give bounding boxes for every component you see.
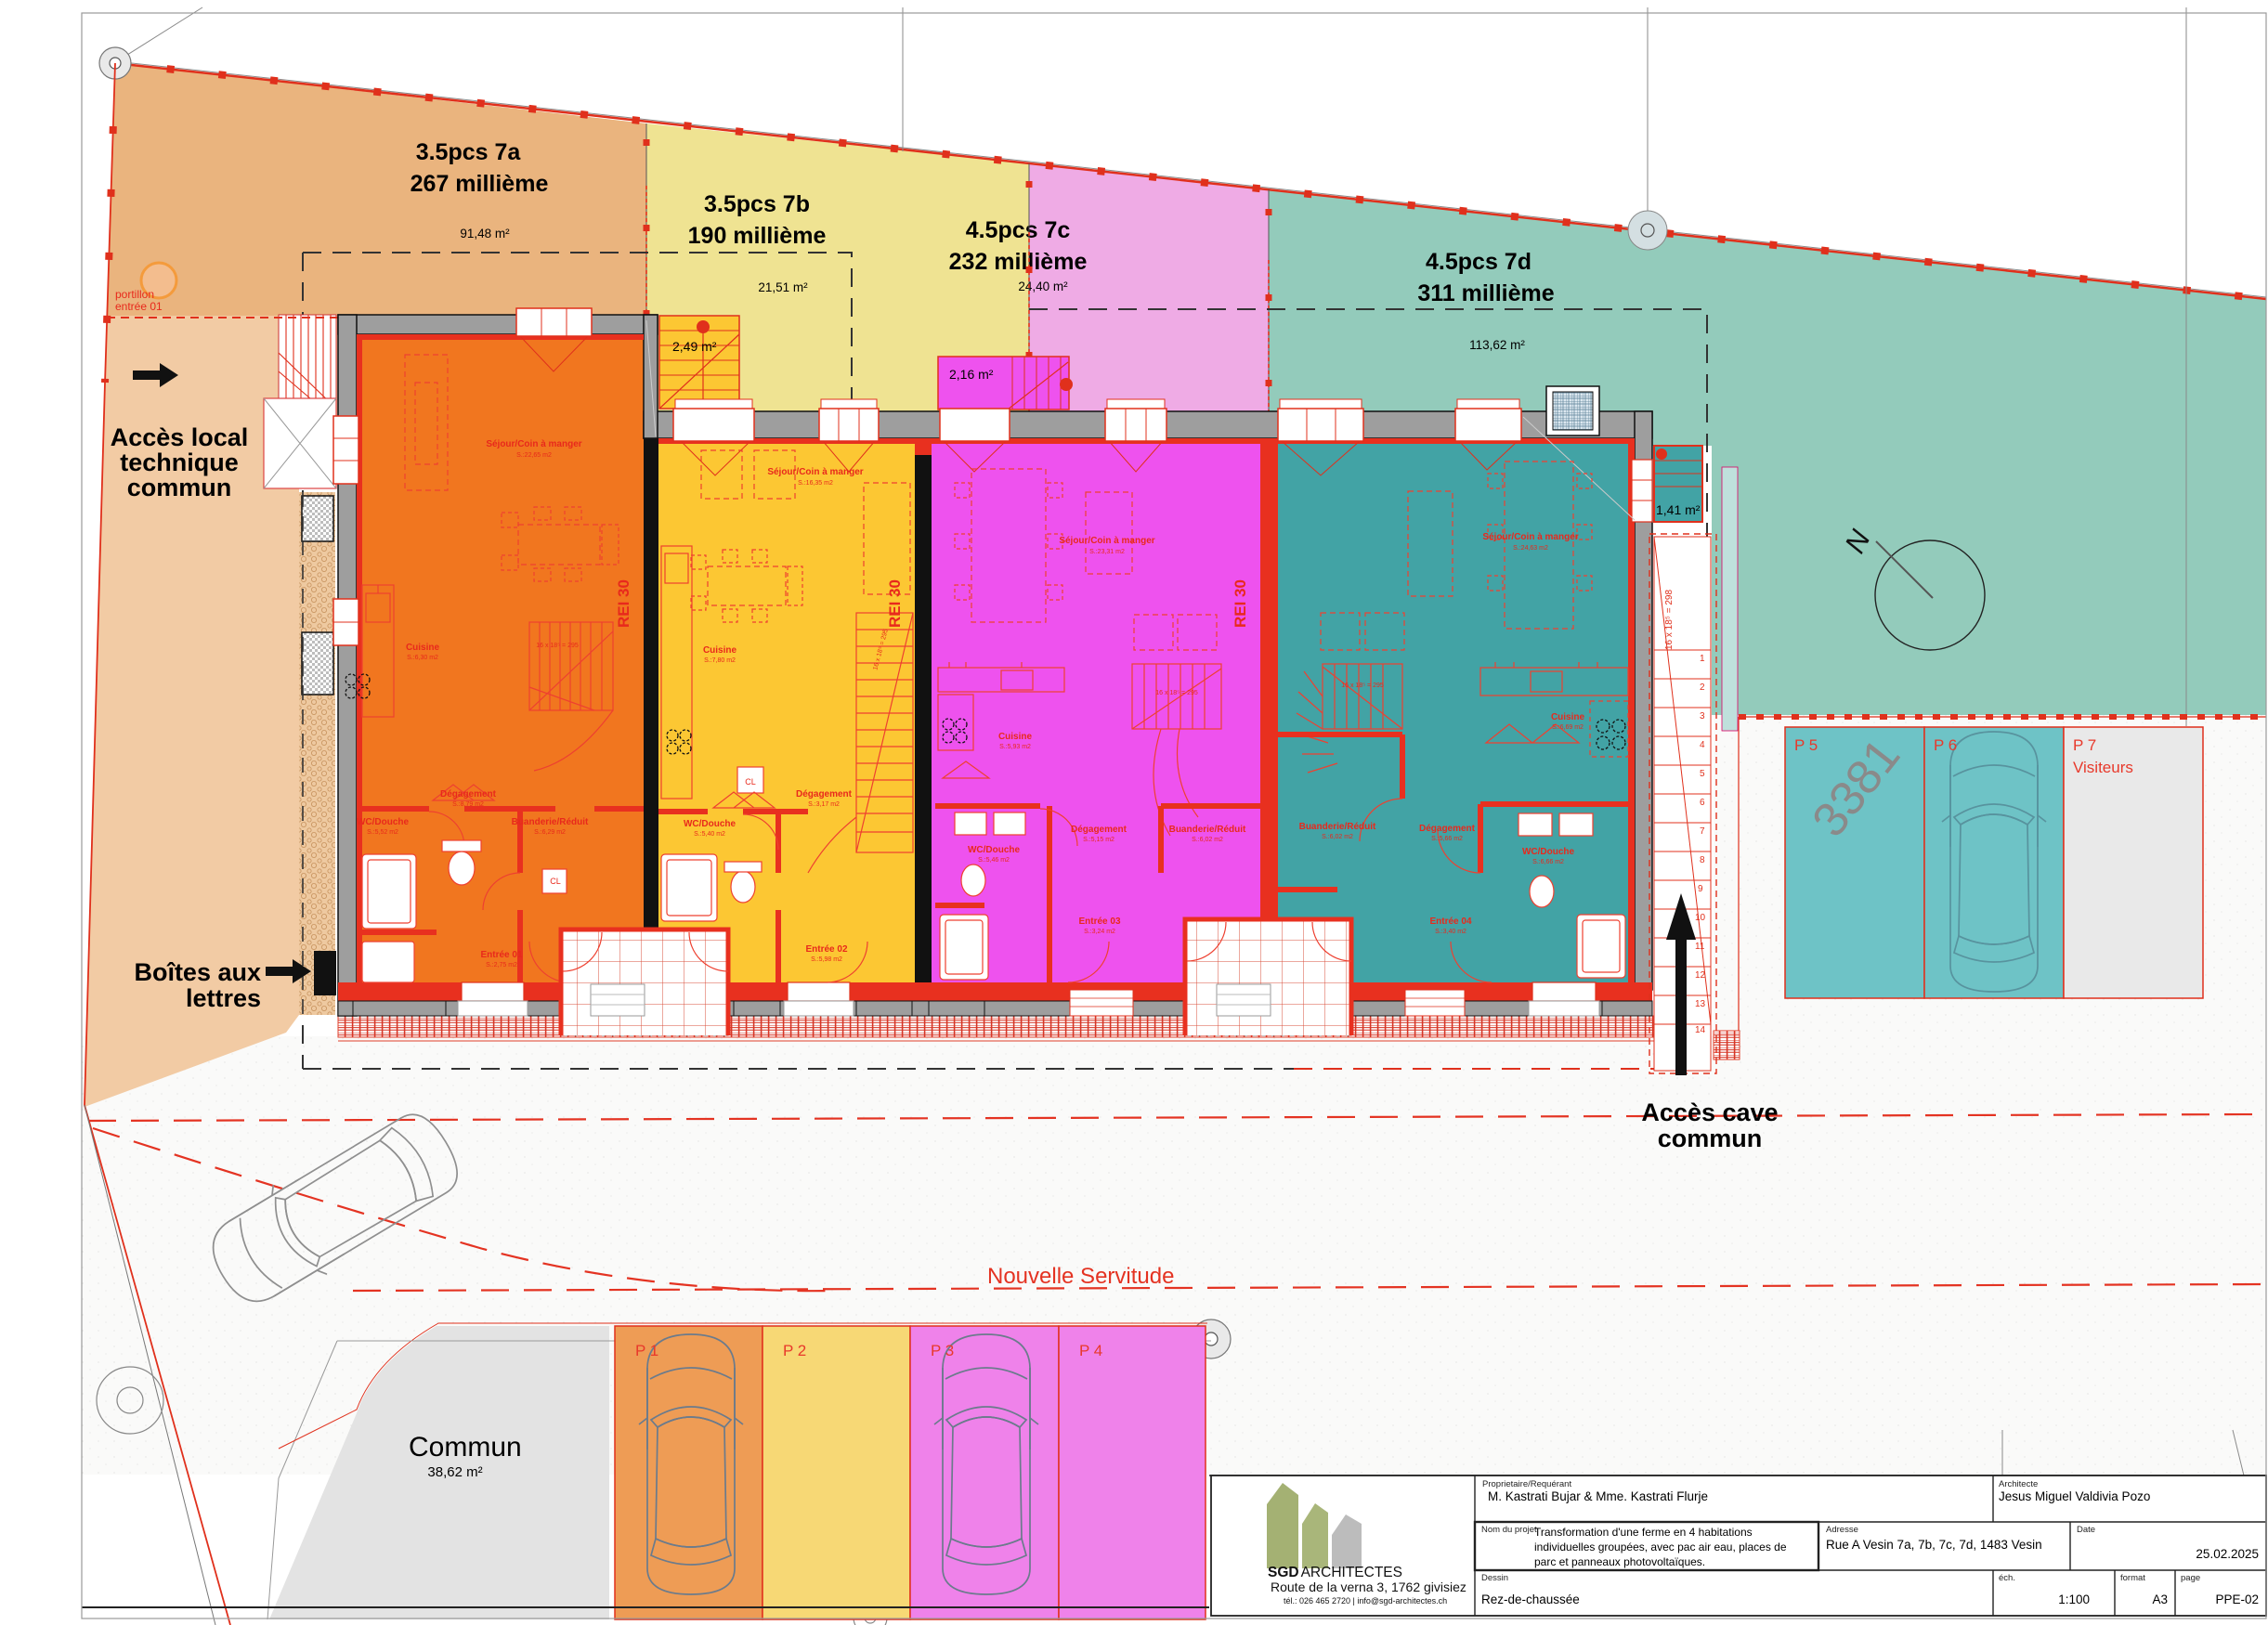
- svg-text:16 x 18⁵ = 298: 16 x 18⁵ = 298: [1664, 590, 1675, 650]
- svg-text:S.:5,15 m2: S.:5,15 m2: [1083, 837, 1114, 843]
- svg-text:Cuisine: Cuisine: [998, 732, 1033, 742]
- svg-text:Nouvelle Servitude: Nouvelle Servitude: [987, 1264, 1174, 1289]
- svg-text:Buanderie/Réduit: Buanderie/Réduit: [512, 817, 589, 827]
- svg-text:267 millième: 267 millième: [411, 171, 549, 197]
- svg-text:4.5pcs 7d: 4.5pcs 7d: [1426, 249, 1532, 275]
- svg-text:4: 4: [1700, 740, 1705, 750]
- svg-text:S.:5,46 m2: S.:5,46 m2: [978, 857, 1010, 864]
- svg-text:Séjour/Coin à manger: Séjour/Coin à manger: [767, 467, 863, 477]
- svg-text:Séjour/Coin à manger: Séjour/Coin à manger: [1059, 536, 1154, 546]
- svg-text:25.02.2025: 25.02.2025: [2196, 1547, 2259, 1561]
- svg-text:Accès local: Accès local: [111, 423, 249, 451]
- svg-text:WC/Douche: WC/Douche: [357, 817, 410, 827]
- svg-text:16 x 18⁵ = 295: 16 x 18⁵ = 295: [536, 643, 579, 649]
- svg-text:REI 30: REI 30: [886, 579, 904, 628]
- svg-text:24,40 m²: 24,40 m²: [1018, 279, 1068, 293]
- svg-text:PPE-02: PPE-02: [2215, 1592, 2259, 1606]
- svg-text:Entrée 01: Entrée 01: [480, 950, 522, 960]
- svg-text:lettres: lettres: [186, 984, 261, 1012]
- svg-text:Cuisine: Cuisine: [406, 643, 440, 653]
- svg-text:38,62 m²: 38,62 m²: [427, 1464, 482, 1480]
- svg-text:S.:22,65 m2: S.:22,65 m2: [516, 452, 552, 459]
- svg-text:Cuisine: Cuisine: [1551, 712, 1585, 722]
- svg-text:13: 13: [1695, 999, 1706, 1009]
- svg-text:Séjour/Coin à manger: Séjour/Coin à manger: [486, 439, 581, 449]
- svg-text:Boîtes aux: Boîtes aux: [134, 958, 261, 986]
- svg-text:Jesus Miguel Valdivia Pozo: Jesus Miguel Valdivia Pozo: [1999, 1489, 2150, 1503]
- svg-text:232 millième: 232 millième: [949, 249, 1088, 275]
- svg-text:WC/Douche: WC/Douche: [1522, 847, 1575, 857]
- svg-text:P 1: P 1: [635, 1342, 658, 1359]
- svg-text:technique: technique: [120, 448, 239, 476]
- svg-text:Route de la verna 3, 1762 givi: Route de la verna 3, 1762 givisiez: [1271, 1579, 1466, 1594]
- svg-text:113,62 m²: 113,62 m²: [1469, 338, 1525, 352]
- svg-text:2: 2: [1700, 682, 1705, 693]
- svg-text:9: 9: [1698, 884, 1703, 894]
- svg-text:commun: commun: [1658, 1124, 1763, 1152]
- svg-text:S.:6,02 m2: S.:6,02 m2: [1322, 834, 1353, 840]
- svg-text:S.:6,66 m2: S.:6,66 m2: [1532, 859, 1564, 865]
- svg-text:S.:6,30 m2: S.:6,30 m2: [407, 655, 438, 661]
- svg-text:individuelles groupées, avec p: individuelles groupées, avec pac air eau…: [1534, 1540, 1787, 1553]
- svg-text:S.:3,17 m2: S.:3,17 m2: [808, 801, 840, 808]
- svg-text:WC/Douche: WC/Douche: [684, 819, 736, 829]
- svg-text:12: 12: [1695, 970, 1706, 981]
- svg-text:Visiteurs: Visiteurs: [2073, 759, 2133, 776]
- svg-text:3.5pcs 7b: 3.5pcs 7b: [704, 191, 810, 217]
- svg-text:14: 14: [1695, 1025, 1706, 1035]
- svg-text:16 x 18⁵ = 295: 16 x 18⁵ = 295: [1155, 690, 1198, 696]
- svg-text:S.:5,66 m2: S.:5,66 m2: [1431, 836, 1463, 842]
- svg-text:Nom du projet: Nom du projet: [1481, 1525, 1537, 1535]
- svg-text:21,51 m²: 21,51 m²: [758, 280, 808, 294]
- svg-text:S.:16,35 m2: S.:16,35 m2: [798, 480, 833, 487]
- svg-text:Dégagement: Dégagement: [440, 789, 497, 799]
- svg-text:P 3: P 3: [931, 1342, 954, 1359]
- svg-text:6: 6: [1700, 798, 1705, 808]
- svg-text:91,48 m²: 91,48 m²: [460, 227, 510, 240]
- svg-text:REI 30: REI 30: [1232, 579, 1249, 628]
- svg-text:Entrée 02: Entrée 02: [805, 944, 847, 955]
- svg-text:8: 8: [1700, 855, 1705, 865]
- svg-text:P 2: P 2: [783, 1342, 806, 1359]
- svg-text:CL: CL: [745, 777, 756, 786]
- svg-text:REI 30: REI 30: [615, 579, 632, 628]
- svg-text:tél.: 026 465 2720 | info@sgd-: tél.: 026 465 2720 | info@sgd-architecte…: [1284, 1596, 1447, 1605]
- svg-text:16 x 18⁵ = 295: 16 x 18⁵ = 295: [1341, 682, 1384, 689]
- svg-text:S.:6,02 m2: S.:6,02 m2: [1192, 837, 1223, 843]
- svg-text:311 millième: 311 millième: [1417, 280, 1554, 306]
- svg-text:Rez-de-chaussée: Rez-de-chaussée: [1481, 1592, 1580, 1606]
- svg-text:1,41 m²: 1,41 m²: [1656, 502, 1701, 517]
- svg-text:2,49 m²: 2,49 m²: [672, 339, 717, 354]
- svg-text:1:100: 1:100: [2058, 1592, 2090, 1606]
- svg-text:entrée 01: entrée 01: [115, 300, 163, 313]
- svg-text:A3: A3: [2152, 1592, 2168, 1606]
- svg-text:P 4: P 4: [1079, 1342, 1102, 1359]
- svg-text:Transformation d'une ferme en: Transformation d'une ferme en 4 habitati…: [1534, 1526, 1753, 1539]
- svg-text:Dessin: Dessin: [1481, 1573, 1508, 1583]
- svg-text:M. Kastrati Bujar & Mme. Kastr: M. Kastrati Bujar & Mme. Kastrati Flurje: [1488, 1489, 1708, 1503]
- svg-text:page: page: [2181, 1573, 2200, 1583]
- svg-text:P 5: P 5: [1794, 736, 1818, 754]
- svg-text:format: format: [2120, 1573, 2145, 1583]
- svg-text:Séjour/Coin à manger: Séjour/Coin à manger: [1482, 532, 1578, 542]
- svg-text:Entrée 03: Entrée 03: [1078, 916, 1120, 927]
- svg-text:S.:5,40 m2: S.:5,40 m2: [694, 831, 725, 838]
- svg-text:Commun: Commun: [409, 1432, 522, 1462]
- svg-text:7: 7: [1700, 826, 1705, 837]
- svg-text:Buanderie/Réduit: Buanderie/Réduit: [1299, 822, 1376, 832]
- svg-text:Entrée 04: Entrée 04: [1429, 916, 1471, 927]
- svg-text:S.:5,52 m2: S.:5,52 m2: [367, 829, 398, 836]
- svg-text:2,16 m²: 2,16 m²: [949, 367, 994, 382]
- svg-text:3.5pcs 7a: 3.5pcs 7a: [416, 139, 522, 165]
- svg-text:Adresse: Adresse: [1826, 1525, 1858, 1535]
- svg-text:Architecte: Architecte: [1999, 1479, 2038, 1489]
- svg-text:SGDARCHITECTES: SGDARCHITECTES: [1268, 1565, 1402, 1580]
- svg-text:S.:3,40 m2: S.:3,40 m2: [1435, 929, 1466, 935]
- svg-text:S.:24,63 m2: S.:24,63 m2: [1513, 545, 1548, 552]
- svg-text:3: 3: [1700, 711, 1705, 721]
- svg-text:Dégagement: Dégagement: [1419, 824, 1476, 834]
- svg-text:S.:7,80 m2: S.:7,80 m2: [704, 657, 736, 664]
- svg-text:1: 1: [1700, 654, 1705, 664]
- svg-text:Buanderie/Réduit: Buanderie/Réduit: [1169, 825, 1246, 835]
- svg-text:Cuisine: Cuisine: [703, 645, 737, 656]
- svg-text:190 millième: 190 millième: [688, 223, 827, 249]
- svg-text:P 7: P 7: [2073, 736, 2096, 754]
- svg-text:S.:5,98 m2: S.:5,98 m2: [811, 956, 842, 963]
- svg-text:S.:6,69 m2: S.:6,69 m2: [1552, 724, 1584, 731]
- svg-text:Accès cave: Accès cave: [1641, 1098, 1778, 1126]
- svg-text:Proprietaire/Requérant: Proprietaire/Requérant: [1482, 1479, 1571, 1489]
- svg-text:portillon: portillon: [115, 288, 154, 301]
- svg-text:S.:2,75 m2: S.:2,75 m2: [486, 962, 517, 968]
- svg-text:S.:5,93 m2: S.:5,93 m2: [999, 744, 1031, 750]
- svg-text:CL: CL: [550, 877, 561, 886]
- svg-text:S.:6,29 m2: S.:6,29 m2: [534, 829, 566, 836]
- svg-text:Date: Date: [2077, 1525, 2095, 1535]
- svg-text:Dégagement: Dégagement: [1071, 825, 1127, 835]
- svg-text:S.:8,79 m2: S.:8,79 m2: [452, 801, 484, 808]
- svg-text:10: 10: [1695, 913, 1706, 923]
- svg-text:4.5pcs 7c: 4.5pcs 7c: [966, 217, 1071, 243]
- svg-text:S.:3,24 m2: S.:3,24 m2: [1084, 929, 1115, 935]
- svg-text:éch.: éch.: [1999, 1573, 2015, 1583]
- svg-text:11: 11: [1695, 942, 1705, 952]
- svg-text:commun: commun: [127, 474, 232, 501]
- svg-text:Rue A Vesin 7a, 7b, 7c, 7d, 14: Rue A Vesin 7a, 7b, 7c, 7d, 1483 Vesin: [1826, 1538, 2042, 1552]
- svg-text:parc et panneaux photovoltaïqu: parc et panneaux photovoltaïques.: [1534, 1555, 1705, 1568]
- svg-text:WC/Douche: WC/Douche: [968, 845, 1021, 855]
- svg-text:S.:23,31 m2: S.:23,31 m2: [1089, 549, 1125, 555]
- svg-text:5: 5: [1700, 769, 1705, 779]
- svg-text:Dégagement: Dégagement: [796, 789, 853, 799]
- svg-text:P 6: P 6: [1934, 736, 1957, 754]
